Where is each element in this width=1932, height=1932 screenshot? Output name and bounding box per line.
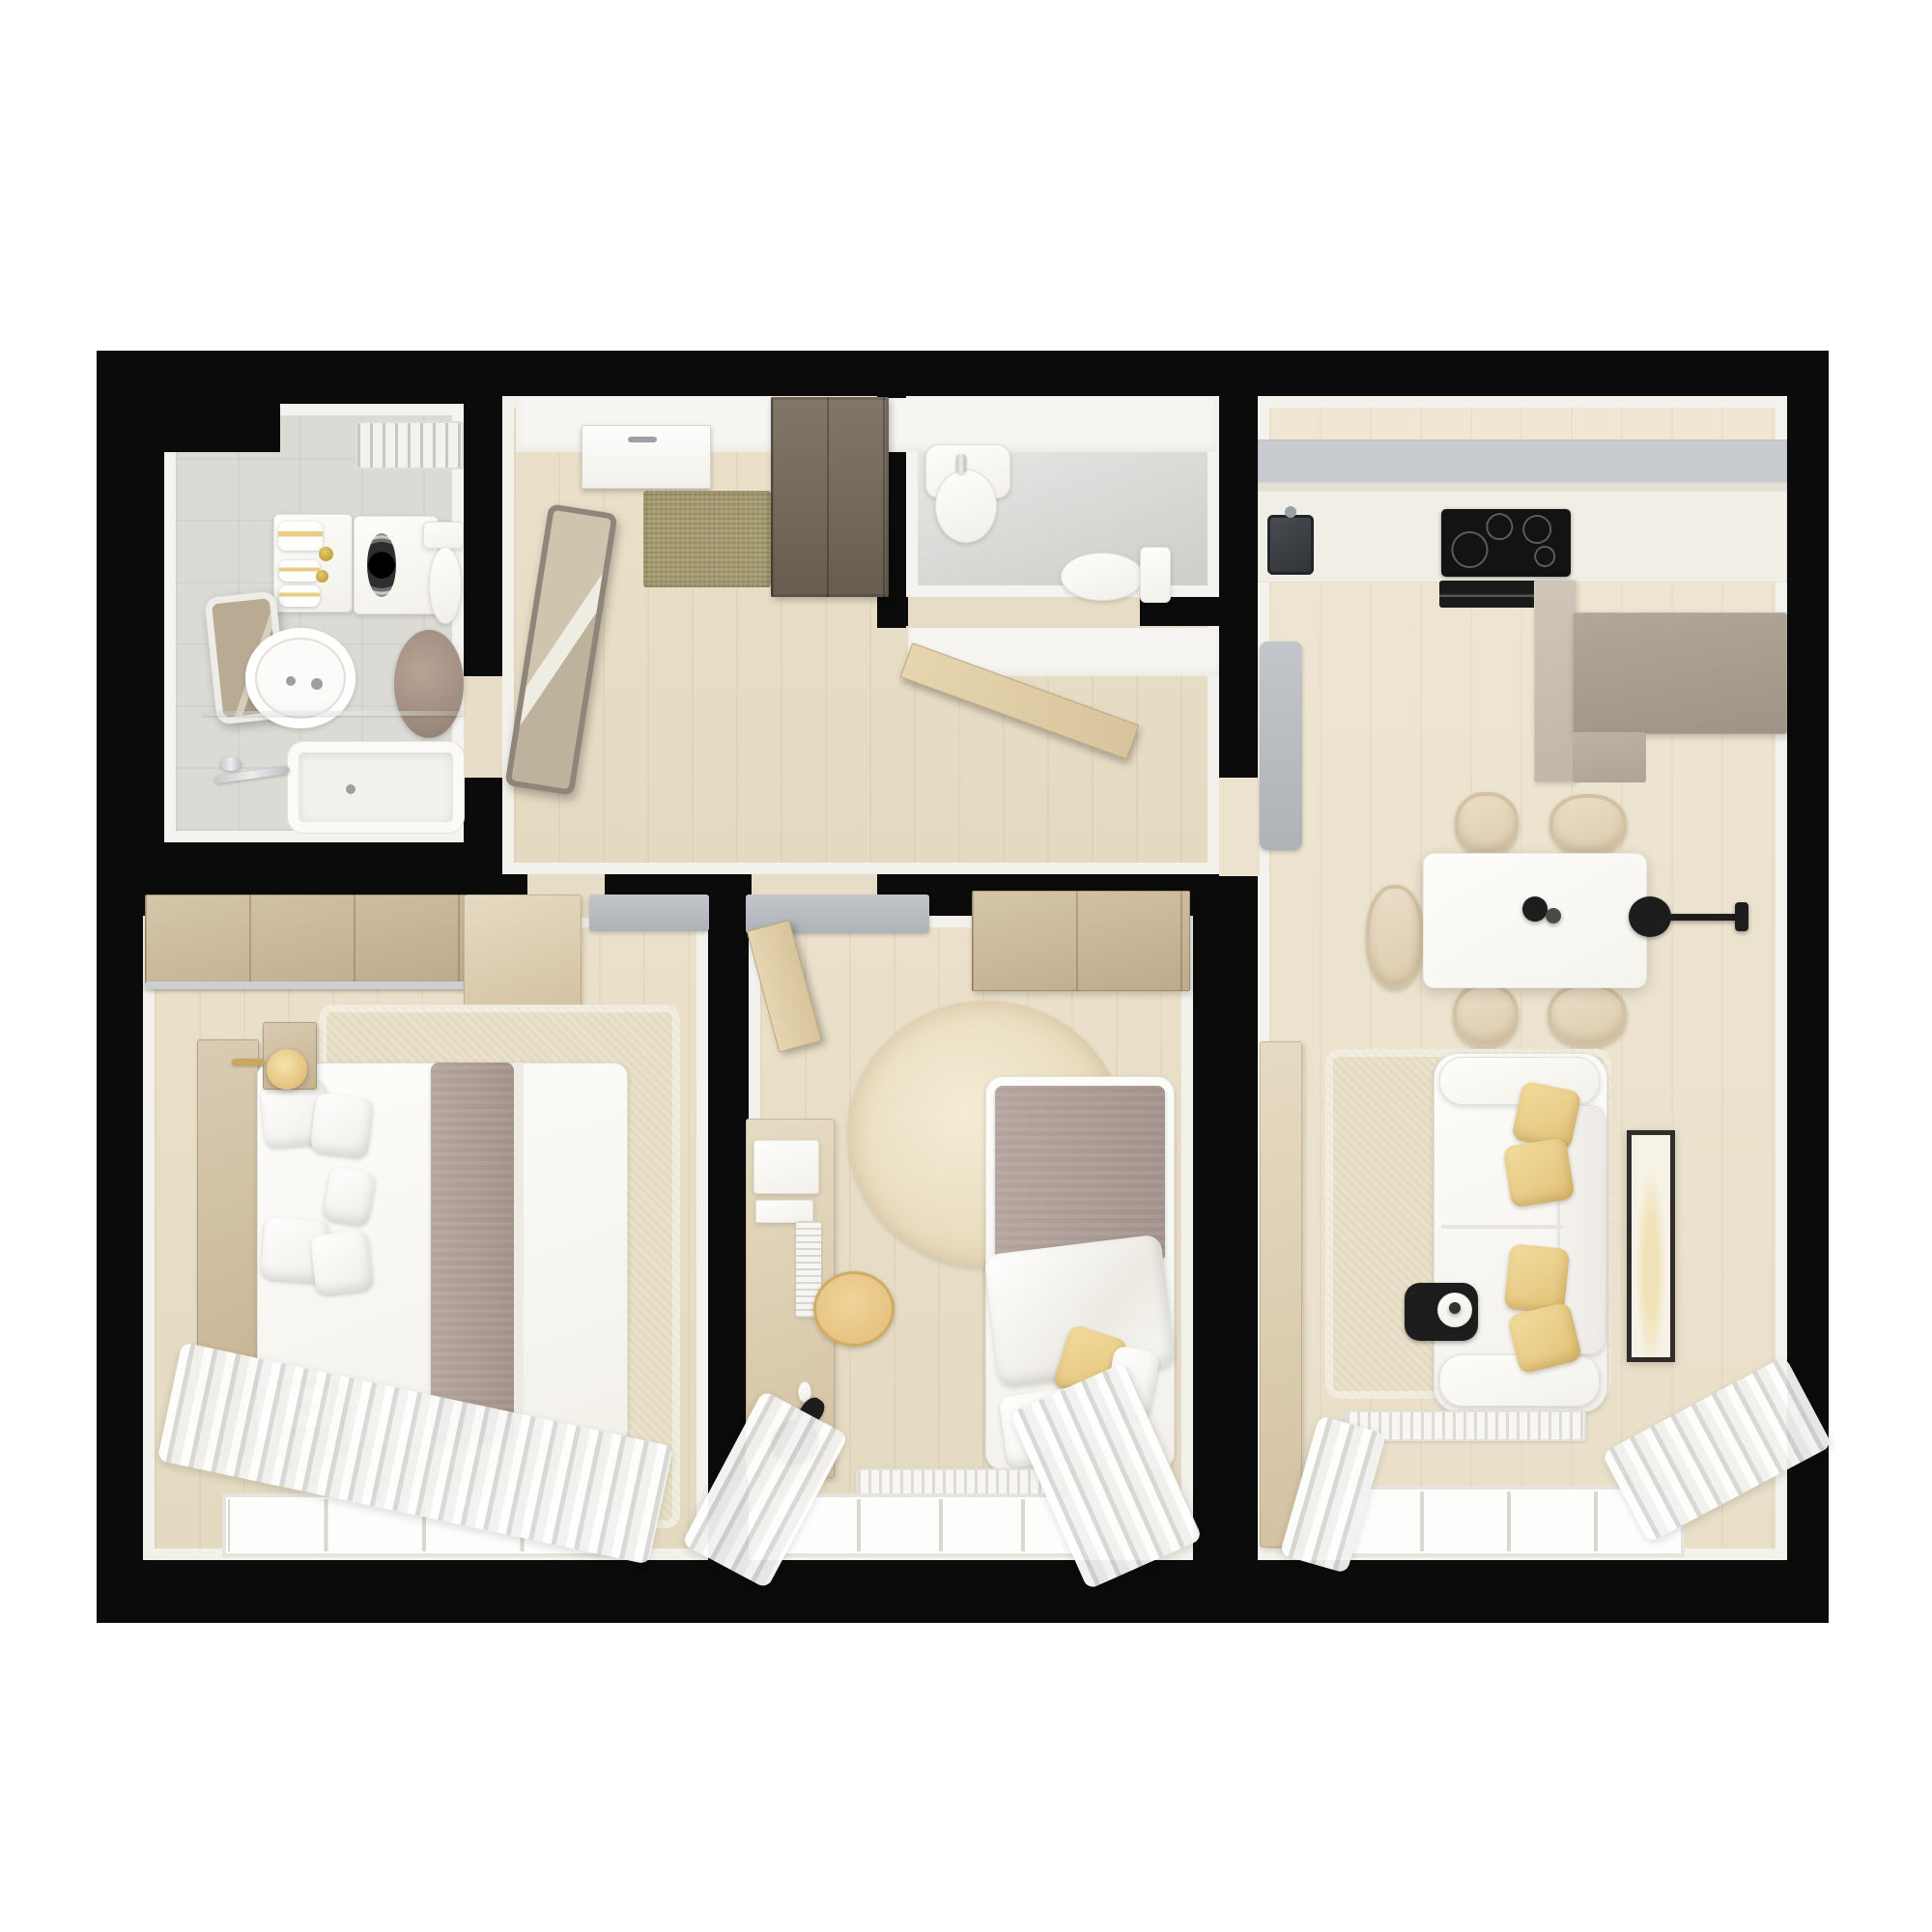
bath-toilet-bowl: [429, 547, 462, 624]
lamp-arm-top: [232, 1059, 265, 1065]
bath-accessory-1: [319, 547, 333, 561]
washer-door: [367, 533, 396, 597]
bed-blanket: [431, 1063, 514, 1443]
dining-chair-left: [1366, 885, 1424, 989]
kitchen-runner-rug: [1260, 641, 1302, 850]
bathtub: [288, 742, 464, 833]
floor-lamp-base: [1735, 902, 1748, 931]
kids-blanket: [995, 1086, 1165, 1262]
tv-sideboard: [1260, 1041, 1302, 1548]
wc-toilet-tank: [1140, 547, 1171, 603]
kids-wardrobe: [972, 891, 1190, 991]
bath-toilet-tank: [423, 522, 464, 549]
cabinet-column: [1534, 580, 1577, 782]
towel-radiator: [355, 421, 464, 469]
bathroom-corner-wall: [164, 404, 280, 452]
table-lamp-top: [267, 1049, 307, 1090]
table-decor-bowl: [1522, 896, 1548, 922]
bath-rug-round: [394, 630, 464, 738]
cabinet-step: [1573, 732, 1646, 782]
tub-drain: [346, 784, 355, 794]
towel-roll-small-1: [279, 560, 320, 582]
kitchen-sink: [1267, 515, 1314, 575]
dining-chair-bottom-right: [1548, 983, 1627, 1047]
bedroom-shelf: [589, 895, 709, 931]
towel-roll-small-2: [279, 585, 320, 607]
wc-tap: [956, 454, 966, 473]
bed-sheet-fold: [514, 1063, 524, 1443]
sink-hole-2: [311, 678, 323, 690]
kitchen-faucet: [1285, 506, 1296, 518]
sofa-pillow-2: [1502, 1137, 1575, 1208]
wardrobe-rail: [145, 981, 466, 989]
sofa-seam: [1441, 1225, 1563, 1229]
hall-wardrobe: [771, 397, 889, 597]
wc-toilet-bowl: [1061, 553, 1144, 601]
table-decor-vase: [1546, 908, 1561, 923]
shower-screen: [203, 711, 464, 716]
bed-pillow-5: [323, 1165, 378, 1226]
bedroom-wardrobe-right: [464, 895, 582, 1007]
wc-sink-bowl: [935, 469, 997, 543]
oven: [1439, 581, 1548, 608]
towel-roll-large: [278, 522, 323, 551]
wall-art: [1627, 1130, 1675, 1362]
floor-lamp-shade: [1629, 896, 1671, 937]
page-background: [0, 0, 1932, 1932]
desk-papers-2: [755, 1200, 813, 1223]
entry-door: [582, 425, 711, 489]
doorway-bathroom: [464, 676, 502, 778]
desk-papers: [753, 1140, 819, 1194]
bed-pillow-2: [309, 1093, 374, 1159]
entry-door-handle: [628, 437, 657, 442]
floor-lamp-arm: [1669, 914, 1741, 921]
sink-hole-1: [286, 676, 296, 686]
dining-chair-bottom-left: [1453, 983, 1519, 1047]
cooktop: [1441, 509, 1571, 577]
coffee-cup: [1449, 1302, 1461, 1314]
doorway-kitchen: [1219, 778, 1260, 876]
bedroom-wardrobe: [145, 895, 466, 985]
doorway-wc: [908, 597, 1140, 628]
dining-chair-top-left: [1455, 792, 1519, 856]
bed-pillow-4: [310, 1230, 374, 1295]
desk-chair: [813, 1271, 895, 1347]
bath-accessory-2: [316, 570, 328, 582]
entry-mat: [643, 491, 771, 587]
bath-faucet-head: [220, 757, 241, 771]
wall-cabinet-right: [1573, 612, 1787, 734]
dining-chair-top-right: [1549, 794, 1627, 856]
